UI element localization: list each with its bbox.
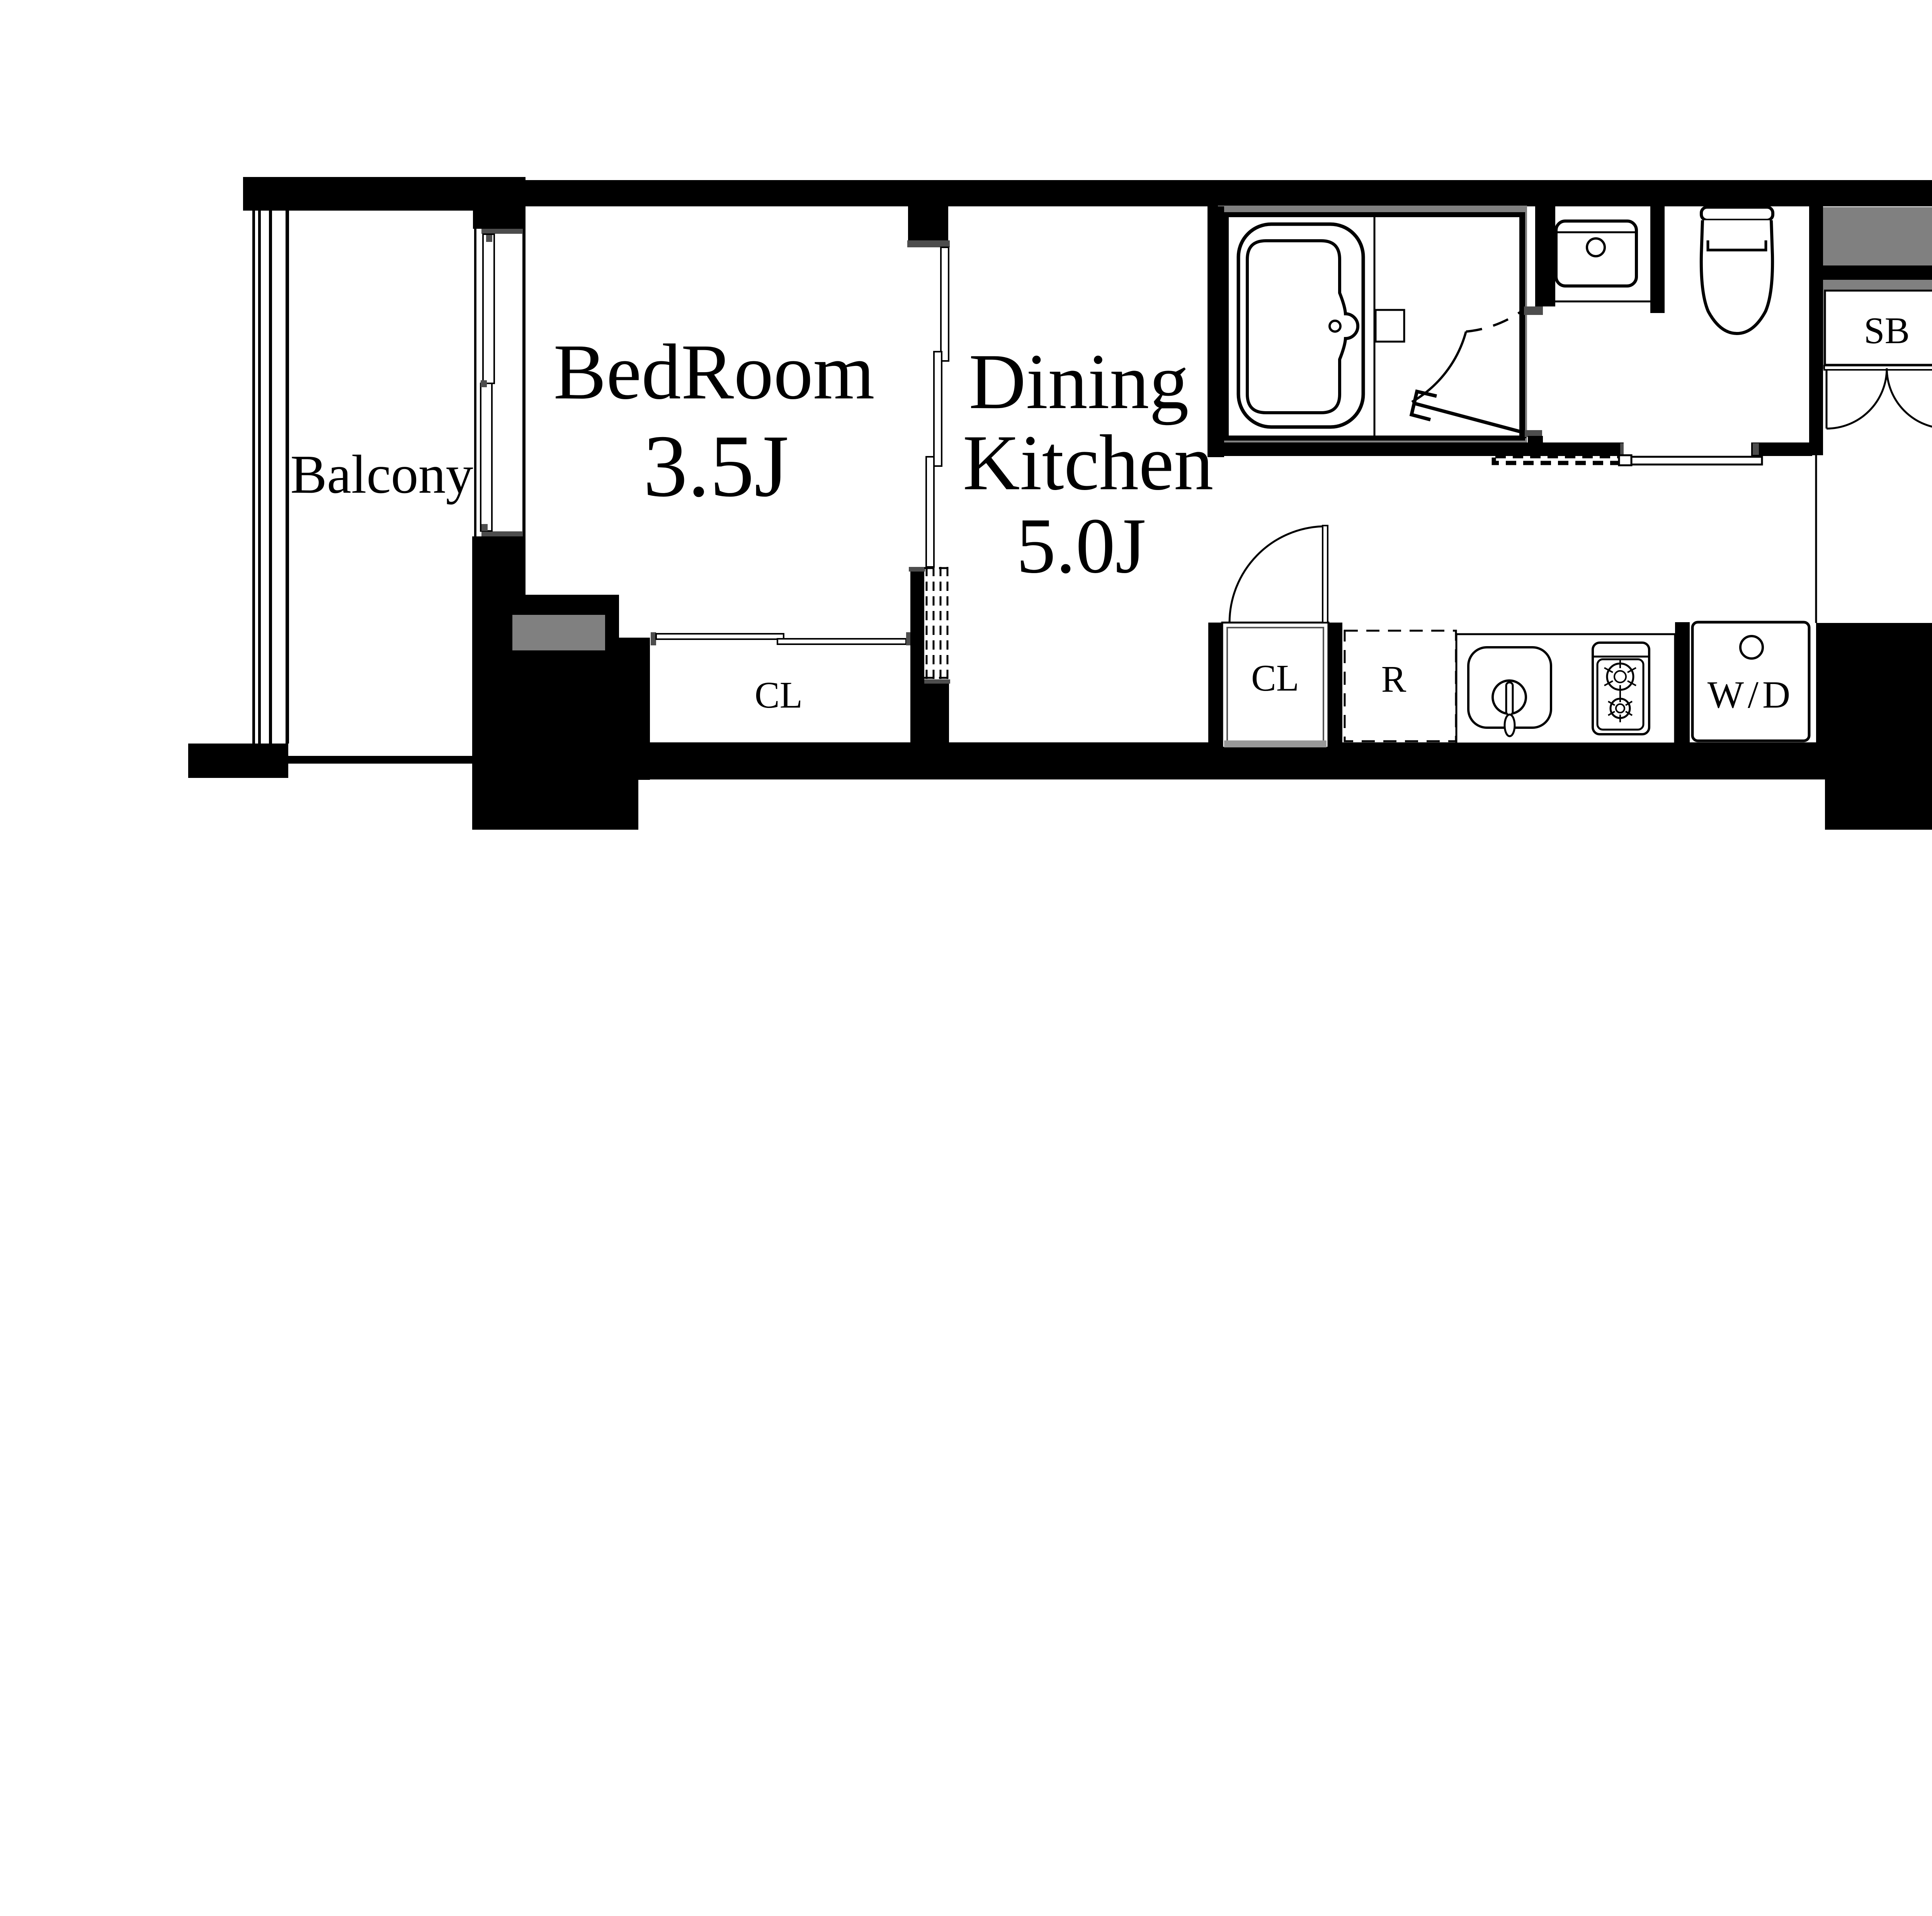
svg-text:CL: CL (755, 674, 803, 716)
svg-text:CL: CL (1251, 657, 1299, 699)
svg-text:Kitchen: Kitchen (963, 419, 1214, 507)
svg-text:Balcony: Balcony (290, 444, 473, 505)
svg-text:W/D: W/D (1708, 673, 1794, 716)
svg-text:3.5J: 3.5J (643, 417, 789, 515)
svg-text:Dining: Dining (969, 338, 1189, 425)
svg-text:SB: SB (1864, 310, 1910, 351)
svg-text:5.0J: 5.0J (1016, 502, 1146, 590)
svg-text:R: R (1381, 659, 1406, 700)
svg-text:BedRoom: BedRoom (553, 328, 874, 416)
